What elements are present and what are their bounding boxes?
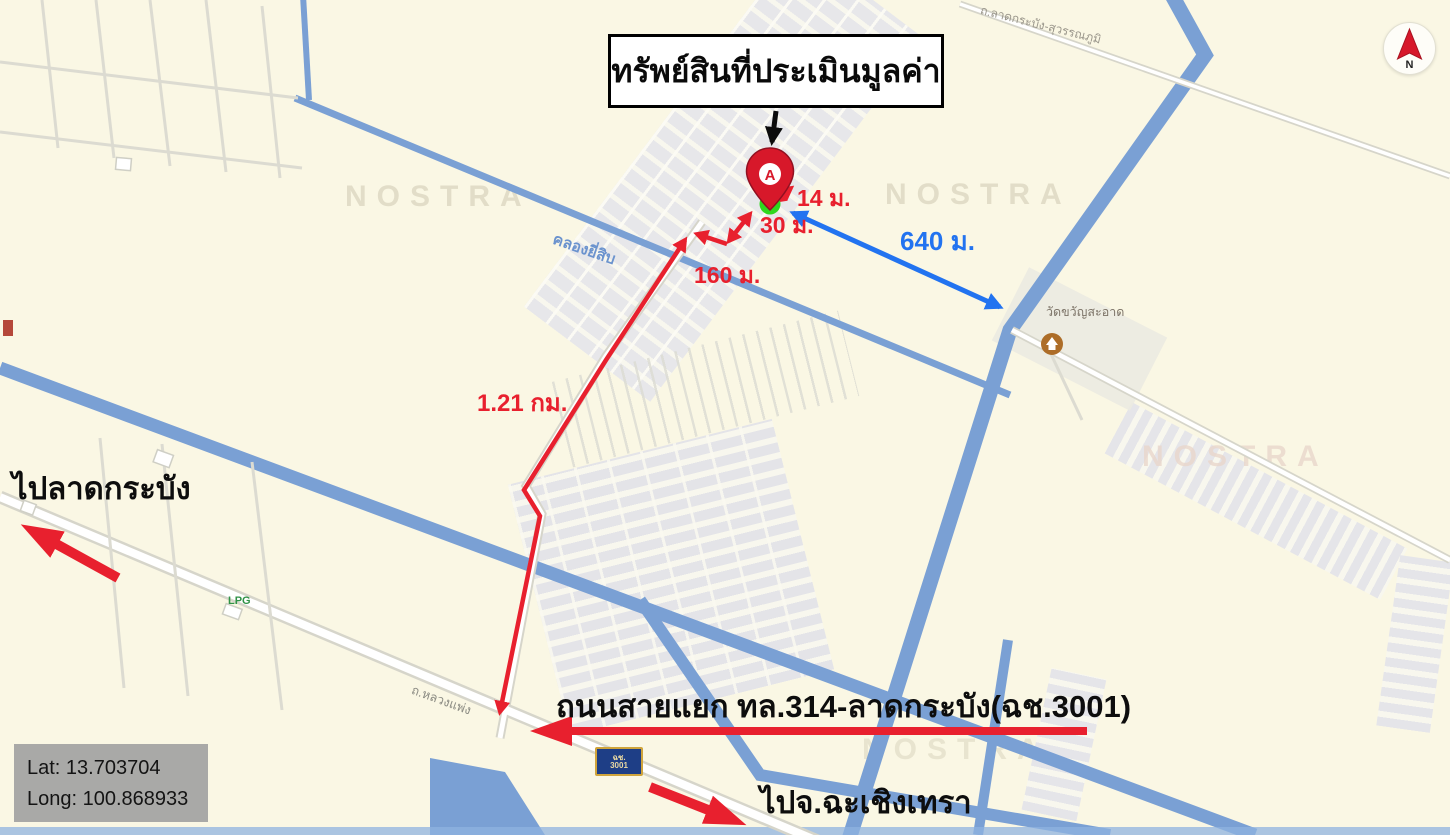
distance-label-30m: 30 ม. xyxy=(760,213,814,238)
title-box: ทรัพย์สินที่ประเมินมูลค่า xyxy=(608,34,944,108)
map-canvas: NOSTRA NOSTRA NOSTRA NOSTRA xyxy=(0,0,1450,835)
route-sign-icon: ฉช. 3001 xyxy=(595,747,643,776)
compass-needle-icon: N xyxy=(1384,23,1435,74)
distance-label-1-21km: 1.21 กม. xyxy=(477,391,567,417)
longitude-value: Long: 100.868933 xyxy=(27,789,195,809)
distance-label-160m: 160 ม. xyxy=(694,263,760,288)
compass-icon: N xyxy=(1383,22,1436,75)
to-lat-krabang-label: ไปลาดกระบัง xyxy=(12,472,191,506)
distance-label-640m: 640 ม. xyxy=(900,227,975,256)
compass-north-label: N xyxy=(1406,59,1414,71)
title-text: ทรัพย์สินที่ประเมินมูลค่า xyxy=(611,46,940,97)
latitude-value: Lat: 13.703704 xyxy=(27,758,195,778)
route-sign-number: 3001 xyxy=(610,762,628,770)
road-junction-label: ถนนสายแยก ทล.314-ลาดกระบัง(ฉช.3001) xyxy=(556,690,1131,724)
to-chachoengsao-label: ไปจ.ฉะเชิงเทรา xyxy=(760,786,972,820)
distance-label-14m: 14 ม. xyxy=(797,186,851,211)
annotation-label-layer: 14 ม. 30 ม. 160 ม. 1.21 กม. 640 ม. ถนนสา… xyxy=(0,0,1450,835)
coordinates-box: Lat: 13.703704 Long: 100.868933 xyxy=(14,744,208,822)
